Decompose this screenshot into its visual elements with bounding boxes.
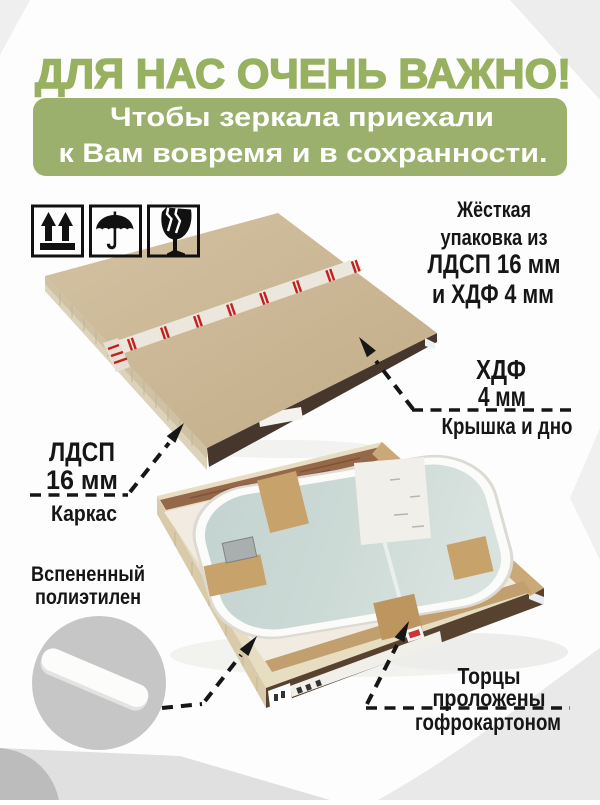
svg-text:ЛДСП: ЛДСП <box>49 437 115 467</box>
svg-text:гофрокартоном: гофрокартоном <box>415 709 561 735</box>
svg-text:к Вам вовремя и в сохранности.: к Вам вовремя и в сохранности. <box>59 138 548 168</box>
svg-text:ЛДСП 16 мм: ЛДСП 16 мм <box>428 249 561 279</box>
svg-text:полиэтилен: полиэтилен <box>35 586 141 609</box>
svg-text:Вспененный: Вспененный <box>31 563 145 586</box>
svg-text:упаковка из: упаковка из <box>441 225 548 250</box>
svg-text:Крышка и дно: Крышка и дно <box>442 413 573 439</box>
svg-text:Чтобы зеркала приехали: Чтобы зеркала приехали <box>110 102 494 132</box>
svg-text:Каркас: Каркас <box>51 501 117 526</box>
svg-text:ДЛЯ НАС ОЧЕНЬ ВАЖНО!: ДЛЯ НАС ОЧЕНЬ ВАЖНО! <box>35 50 571 97</box>
svg-text:Жёсткая: Жёсткая <box>456 197 531 222</box>
svg-text:и ХДФ 4 мм: и ХДФ 4 мм <box>432 279 554 309</box>
svg-text:16 мм: 16 мм <box>46 465 118 495</box>
svg-text:4 мм: 4 мм <box>478 381 526 412</box>
